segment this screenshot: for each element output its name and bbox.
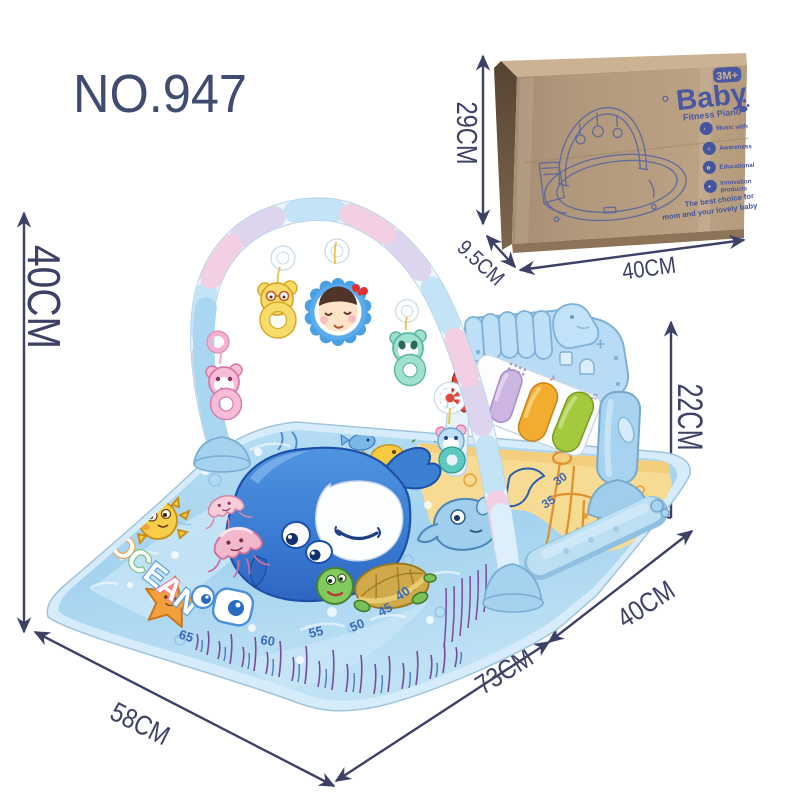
svg-text:☺: ☺ <box>706 146 711 152</box>
svg-text:29CM: 29CM <box>450 102 482 165</box>
svg-text:60: 60 <box>260 632 276 649</box>
svg-text:22CM: 22CM <box>670 384 709 451</box>
svg-text:40CM: 40CM <box>18 245 70 349</box>
svg-text:NO.947: NO.947 <box>73 64 247 124</box>
svg-text:✦: ✦ <box>707 184 712 190</box>
svg-text:✿: ✿ <box>706 165 711 171</box>
